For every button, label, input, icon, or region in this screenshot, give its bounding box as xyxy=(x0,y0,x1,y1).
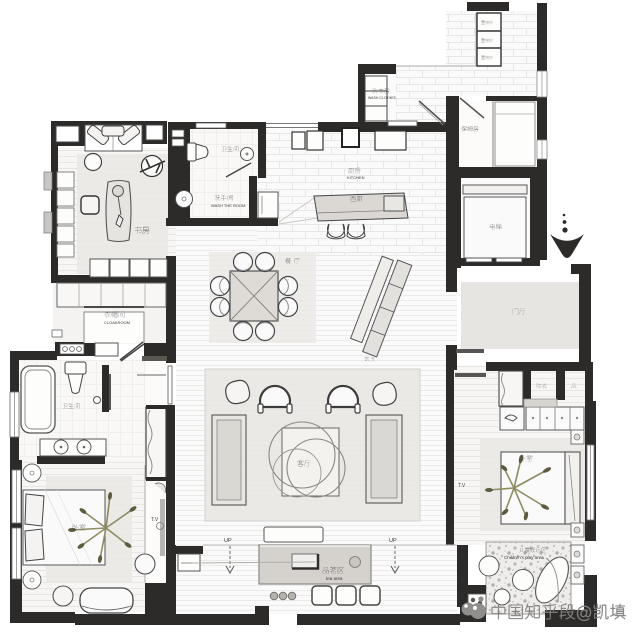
svg-text:KITCHEN: KITCHEN xyxy=(347,175,365,180)
svg-text:T.V: T.V xyxy=(151,517,159,523)
svg-text:tea area: tea area xyxy=(326,576,343,581)
svg-text:WASH CLOTHES: WASH CLOTHES xyxy=(368,96,397,100)
svg-text:UP: UP xyxy=(389,538,397,544)
svg-text:WASH THE ROOM: WASH THE ROOM xyxy=(211,203,245,208)
svg-text:T.V: T.V xyxy=(458,483,466,489)
svg-text:Children's play area: Children's play area xyxy=(504,555,544,560)
svg-text:UP: UP xyxy=(224,538,232,544)
svg-text:CLOAKROOM: CLOAKROOM xyxy=(104,320,130,325)
